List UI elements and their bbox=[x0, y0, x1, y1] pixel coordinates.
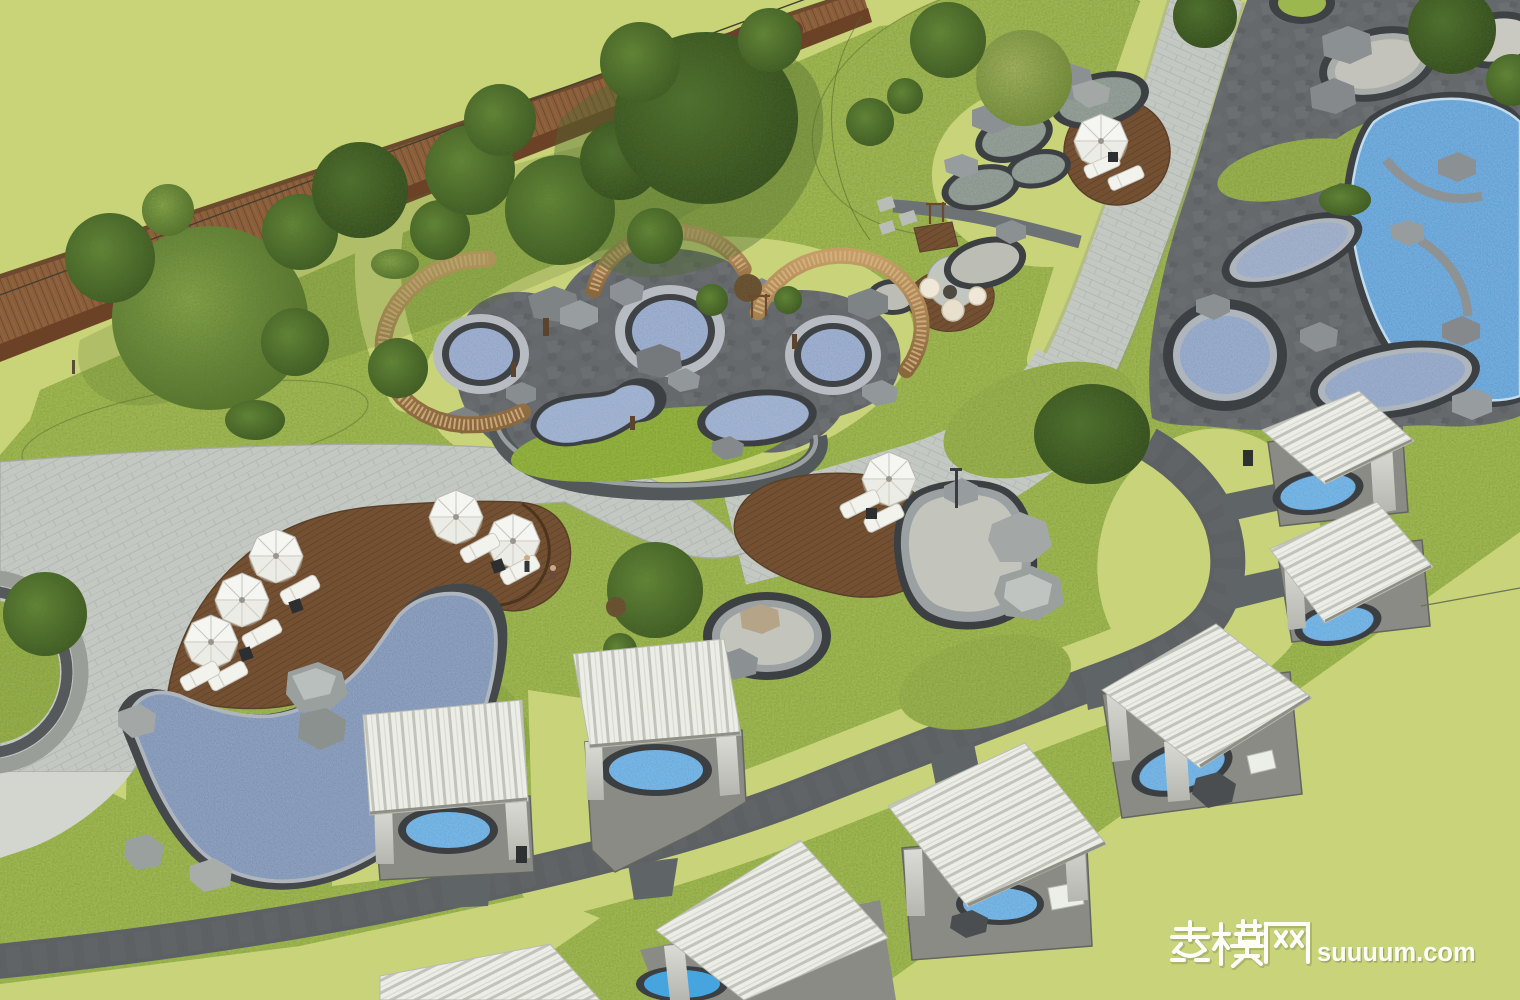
svg-text:suuuum.com: suuuum.com bbox=[1317, 939, 1476, 967]
